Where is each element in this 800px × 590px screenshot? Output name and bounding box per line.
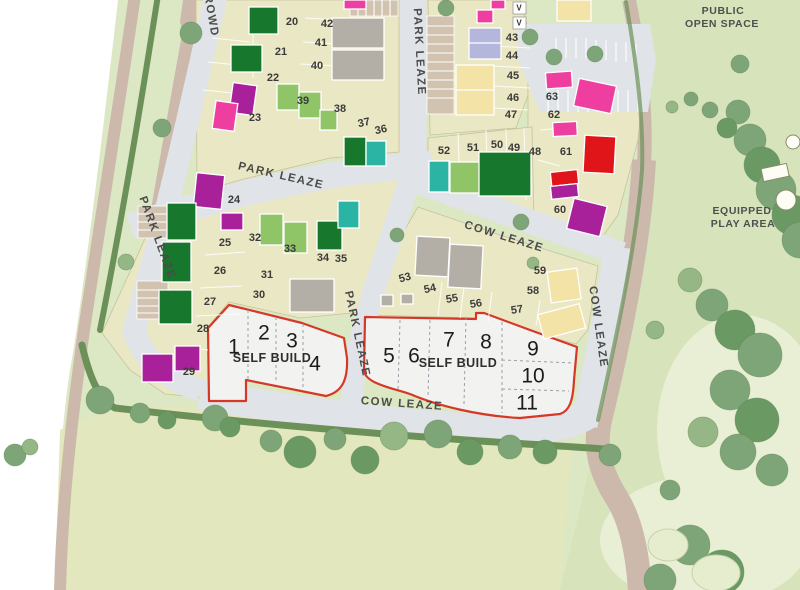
plot-label-23: 23 [249, 112, 261, 124]
plot-label-62: 62 [548, 109, 560, 121]
plot-label-33: 33 [284, 243, 296, 255]
building [477, 10, 493, 23]
play-area-label-line1: EQUIPPED [712, 205, 771, 217]
building [450, 162, 481, 193]
plot-label-46: 46 [507, 92, 519, 104]
self-build-plot-10: 10 [521, 365, 544, 388]
building [212, 101, 238, 132]
plot-label-63: 63 [546, 91, 558, 103]
visitor-marker-label: V [516, 19, 522, 28]
public-open-space-label-line2: OPEN SPACE [685, 18, 759, 30]
plot-label-58: 58 [527, 285, 539, 297]
building [557, 0, 591, 21]
self-build-plot-9: 9 [527, 338, 539, 361]
building [547, 268, 581, 303]
building [167, 203, 196, 240]
plot-label-26: 26 [214, 265, 226, 277]
site-plan-map: 20 21 22 23 24 25 26 27 28 29 30 31 32 3… [0, 0, 800, 590]
plot-label-61: 61 [560, 146, 572, 158]
plot-label-24: 24 [228, 194, 241, 206]
plot-label-34: 34 [317, 252, 330, 264]
building [429, 161, 449, 192]
building [479, 152, 531, 196]
plot-label-50: 50 [491, 139, 503, 151]
plot-label-39: 39 [297, 95, 309, 107]
plot-label-40: 40 [311, 60, 323, 72]
self-build-plot-5: 5 [383, 345, 395, 368]
play-equipment-icon [776, 190, 796, 210]
building [553, 121, 578, 136]
plot-label-56: 56 [469, 297, 483, 311]
plot-label-47: 47 [505, 109, 517, 121]
building [366, 141, 386, 166]
plot-label-48: 48 [529, 146, 541, 158]
plot-label-41: 41 [315, 37, 327, 49]
play-mound [648, 529, 688, 561]
plot-label-36: 36 [374, 123, 388, 137]
building [344, 137, 366, 166]
building [142, 354, 173, 382]
building [448, 244, 483, 289]
plot-label-52: 52 [438, 145, 450, 157]
plot-label-49: 49 [508, 142, 520, 154]
building [159, 290, 192, 324]
plot-label-38: 38 [334, 103, 346, 115]
self-build-label-west: SELF BUILD [233, 351, 312, 365]
building [277, 84, 299, 110]
plot-label-29: 29 [183, 366, 195, 378]
self-build-plot-8: 8 [480, 331, 492, 354]
plot-label-30: 30 [253, 289, 265, 301]
plot-label-45: 45 [507, 70, 519, 82]
building [381, 295, 393, 306]
building [583, 135, 616, 174]
plot-label-51: 51 [467, 142, 479, 154]
plot-label-60: 60 [554, 204, 566, 216]
building [260, 214, 283, 245]
plot-label-31: 31 [261, 269, 273, 281]
plot-label-27: 27 [204, 296, 216, 308]
plot-label-20: 20 [286, 16, 298, 28]
play-area-label-line2: PLAY AREA [711, 218, 776, 230]
self-build-plot-3: 3 [286, 330, 298, 353]
building [550, 184, 578, 200]
building [401, 294, 413, 304]
plot-label-55: 55 [445, 292, 459, 306]
plot-label-25: 25 [219, 237, 231, 249]
building [344, 0, 366, 9]
self-build-plot-11: 11 [516, 392, 538, 415]
building [193, 173, 224, 210]
plot-label-28: 28 [197, 323, 209, 335]
plot-label-32: 32 [249, 232, 261, 244]
self-build-plot-2: 2 [258, 322, 270, 345]
plot-label-37: 37 [357, 116, 371, 130]
site-plan-canvas: 20 21 22 23 24 25 26 27 28 29 30 31 32 3… [0, 0, 800, 590]
plot-label-22: 22 [267, 72, 279, 84]
play-mound [692, 555, 740, 590]
plot-label-59: 59 [534, 265, 546, 277]
building [332, 50, 384, 80]
plot-label-57: 57 [510, 303, 524, 317]
parking-strip [427, 16, 454, 114]
building [415, 236, 450, 277]
building [290, 279, 334, 312]
play-equipment-icon [786, 135, 800, 149]
building [249, 7, 278, 34]
plot-label-44: 44 [506, 50, 519, 62]
building [221, 213, 243, 230]
building [231, 45, 262, 72]
plot-label-21: 21 [275, 46, 287, 58]
plot-label-35: 35 [335, 253, 347, 265]
self-build-plot-7: 7 [443, 329, 455, 352]
building [491, 0, 505, 9]
building [332, 18, 384, 48]
building [338, 201, 359, 228]
public-open-space-label-line1: PUBLIC [702, 5, 745, 17]
building [545, 71, 572, 89]
plot-label-42: 42 [321, 18, 333, 30]
self-build-label-east: SELF BUILD [419, 356, 498, 370]
visitor-marker-label: V [516, 4, 522, 13]
plot-label-43: 43 [506, 32, 518, 44]
